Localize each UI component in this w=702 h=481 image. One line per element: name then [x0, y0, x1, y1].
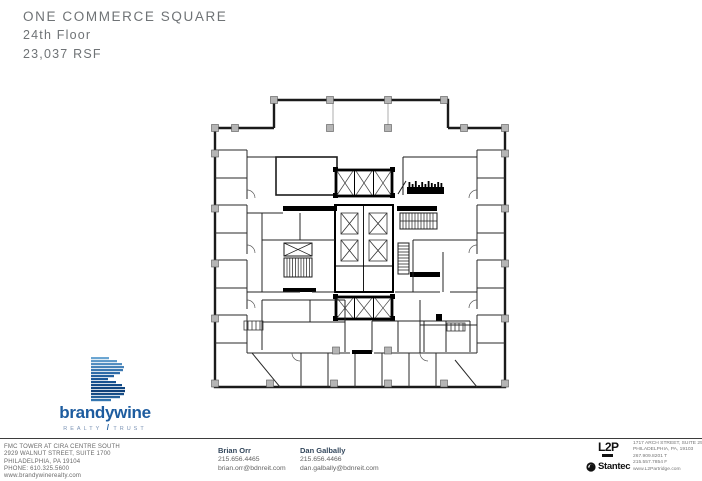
l2p-logo: L2P	[598, 440, 619, 454]
tagline-trust: TRUST	[113, 426, 146, 432]
address-line: FMC TOWER AT CIRA CENTRE SOUTH	[4, 444, 120, 451]
brandywine-tagline: REALTY / TRUST	[30, 423, 180, 432]
contact-phone: 215.656.4465	[218, 455, 286, 464]
columns	[212, 97, 509, 388]
contact-dan-galbally: Dan Galbally 215.656.4466 dan.galbally@b…	[300, 446, 379, 473]
stantec-wordmark: Stantec	[598, 461, 630, 472]
contact-phone: 215.656.4466	[300, 455, 379, 464]
contact-email: brian.orr@bdnreit.com	[218, 464, 286, 473]
rsf-label: 23,037 RSF	[23, 45, 227, 64]
stantec-logo: Stantec	[586, 461, 630, 472]
contact-name: Dan Galbally	[300, 446, 379, 455]
address-line: PHONE: 610.325.5600	[4, 466, 120, 473]
address-line: 2929 WALNUT STREET, SUITE 1700	[4, 451, 120, 458]
brandywine-website: www.brandywinerealty.com	[4, 473, 120, 480]
outer-walls	[215, 100, 505, 387]
page-title-block: ONE COMMERCE SQUARE 24th Floor 23,037 RS…	[23, 7, 227, 64]
bay-mullions	[333, 100, 388, 128]
footer-divider	[0, 438, 702, 439]
brandywine-wordmark: brandywine	[30, 404, 180, 421]
flyer-page: ONE COMMERCE SQUARE 24th Floor 23,037 RS…	[0, 0, 702, 481]
stantec-circle-icon	[586, 462, 596, 472]
floor-label: 24th Floor	[23, 26, 227, 45]
tagline-slash: /	[107, 423, 109, 432]
contact-name: Brian Orr	[218, 446, 286, 455]
arch-address-line: PHILADELPHIA, PA, 19103	[633, 447, 702, 453]
elevator-bank-lower	[333, 294, 395, 321]
contact-email: dan.galbally@bdnreit.com	[300, 464, 379, 473]
floor-plan	[200, 85, 510, 395]
interior-partitions	[247, 213, 477, 353]
brandywine-logo: brandywine REALTY / TRUST	[30, 357, 180, 432]
contact-brian-orr: Brian Orr 215.656.4465 brian.orr@bdnreit…	[218, 446, 286, 473]
architect-address: 1717 ARCH STREET, SUITE 250 PHILADELPHIA…	[633, 441, 702, 473]
millwork	[407, 181, 444, 194]
tagline-realty: REALTY	[63, 426, 102, 432]
brandywine-address: FMC TOWER AT CIRA CENTRE SOUTH 2929 WALN…	[4, 444, 120, 480]
elevator-bank-upper	[333, 167, 395, 198]
core-mid	[335, 205, 393, 292]
brandywine-b-icon	[85, 357, 125, 403]
architect-website: www.L2Partridge.com	[633, 467, 702, 473]
building-name: ONE COMMERCE SQUARE	[23, 7, 227, 26]
stair-right	[398, 213, 437, 274]
l2p-logo-bar	[602, 454, 613, 457]
stair-left	[284, 243, 312, 277]
address-line: PHILADELPHIA, PA 19104	[4, 459, 120, 466]
